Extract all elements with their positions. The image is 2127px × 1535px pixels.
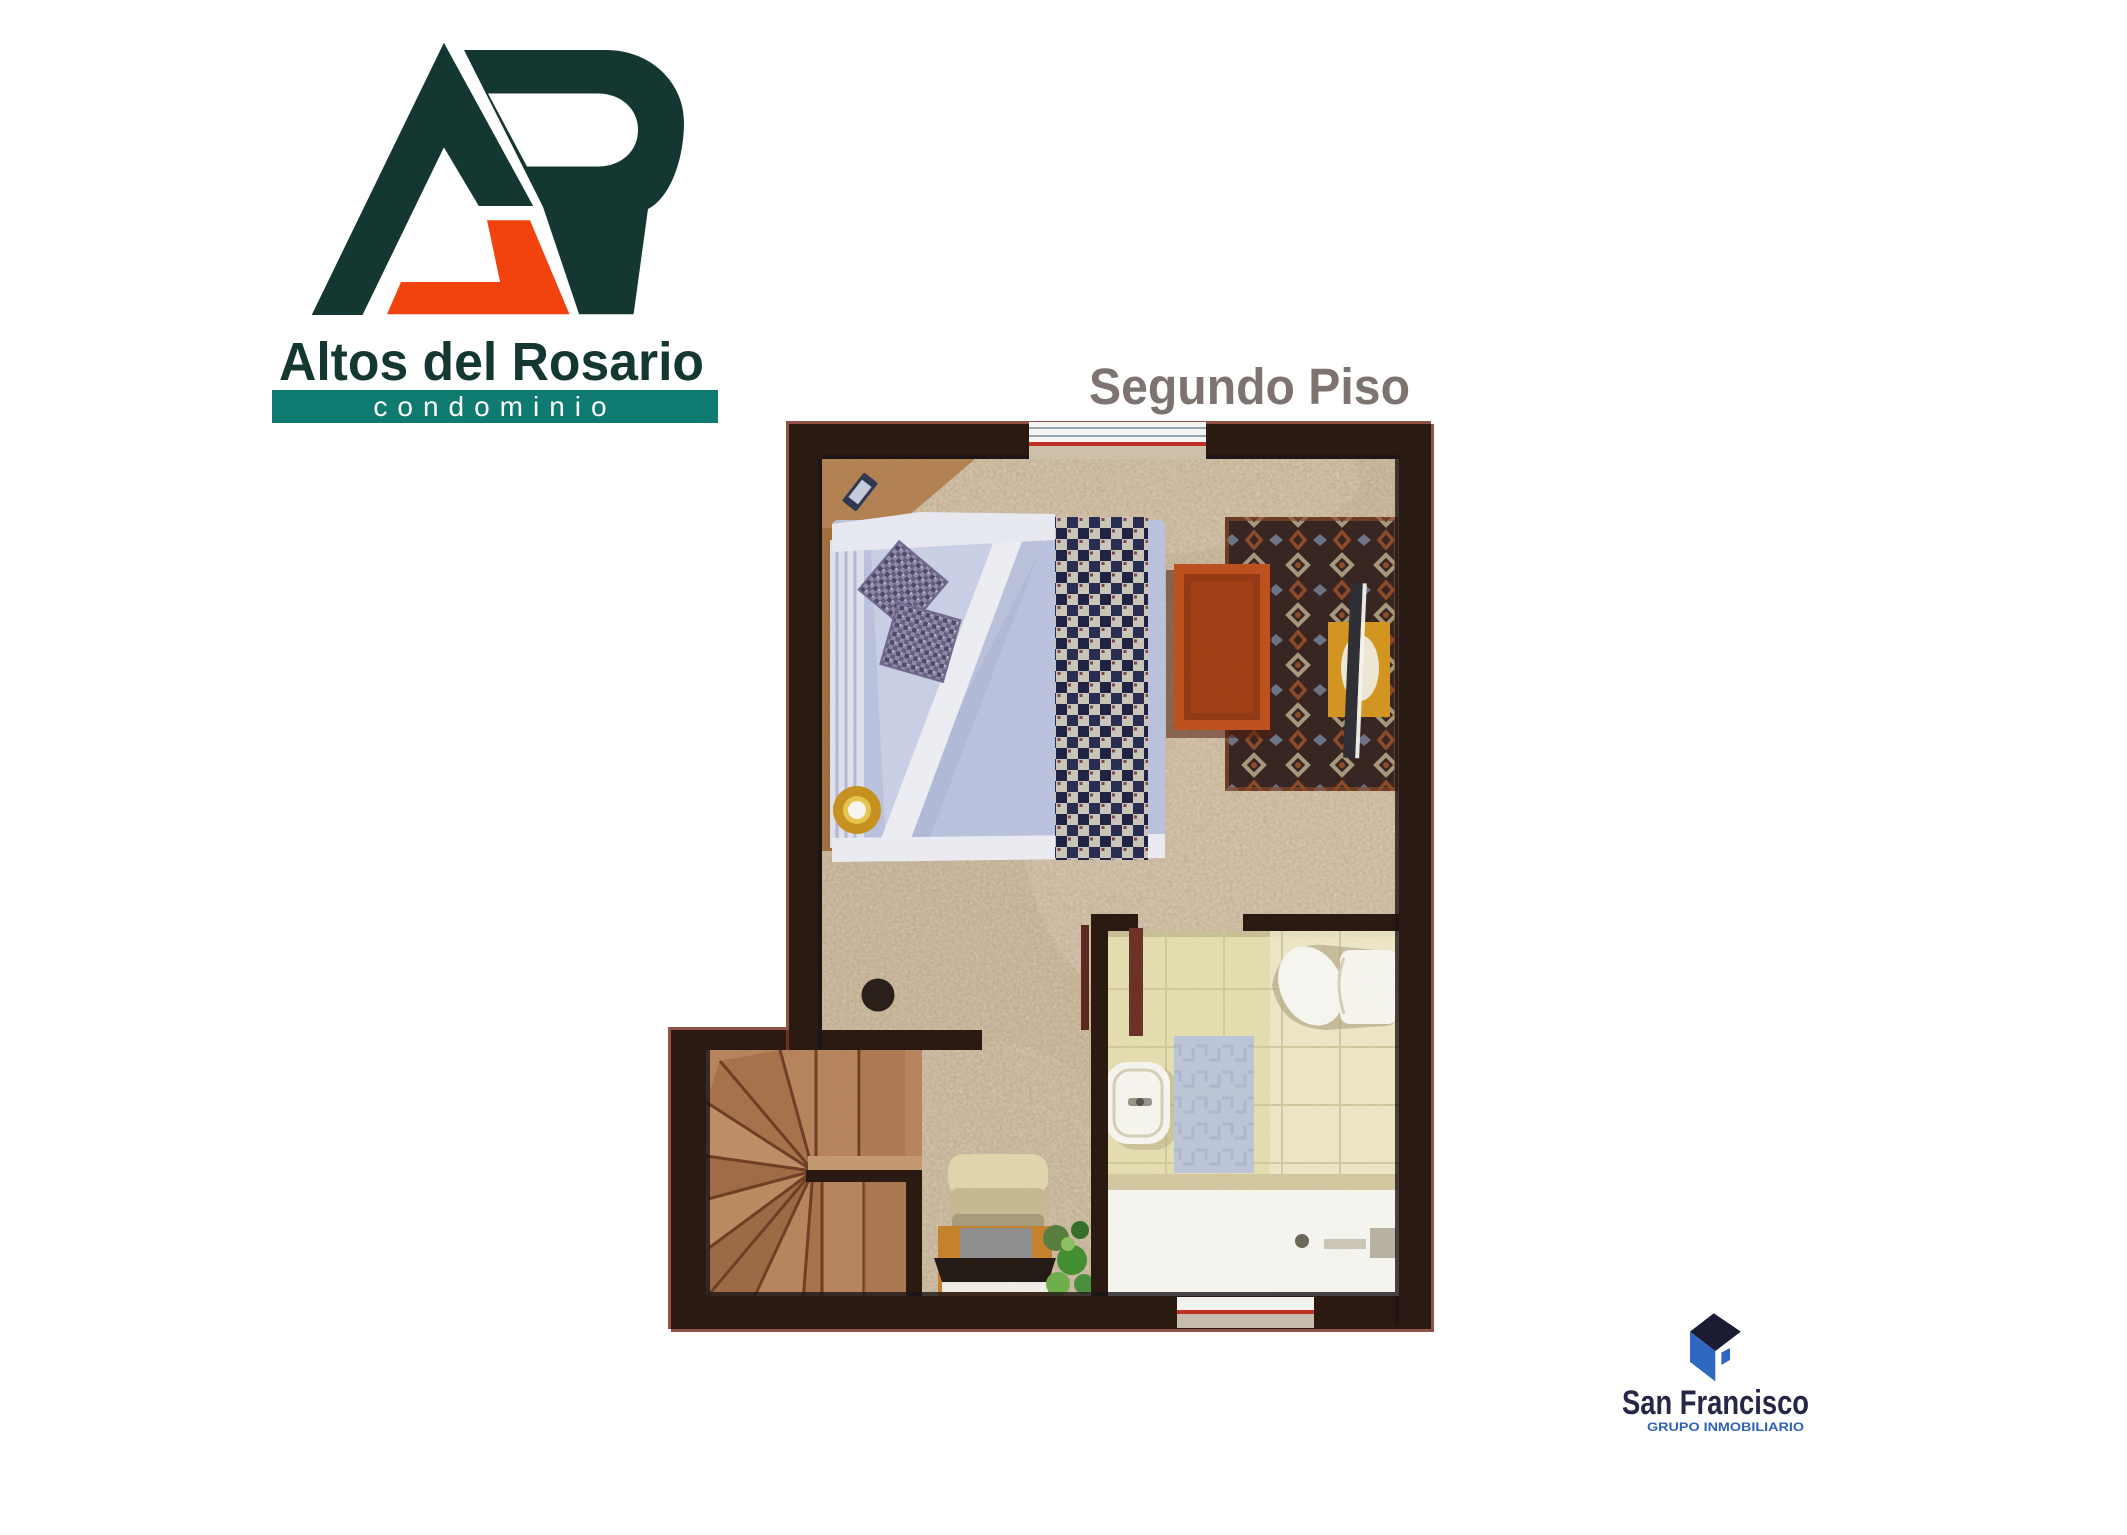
svg-text:GRUPO INMOBILIARIO: GRUPO INMOBILIARIO [1647,1420,1804,1434]
svg-text:condominio: condominio [373,391,616,422]
svg-text:San Francisco: San Francisco [1622,1384,1809,1422]
svg-text:Segundo Piso: Segundo Piso [1089,358,1410,415]
svg-text:Altos del Rosario: Altos del Rosario [279,332,704,392]
